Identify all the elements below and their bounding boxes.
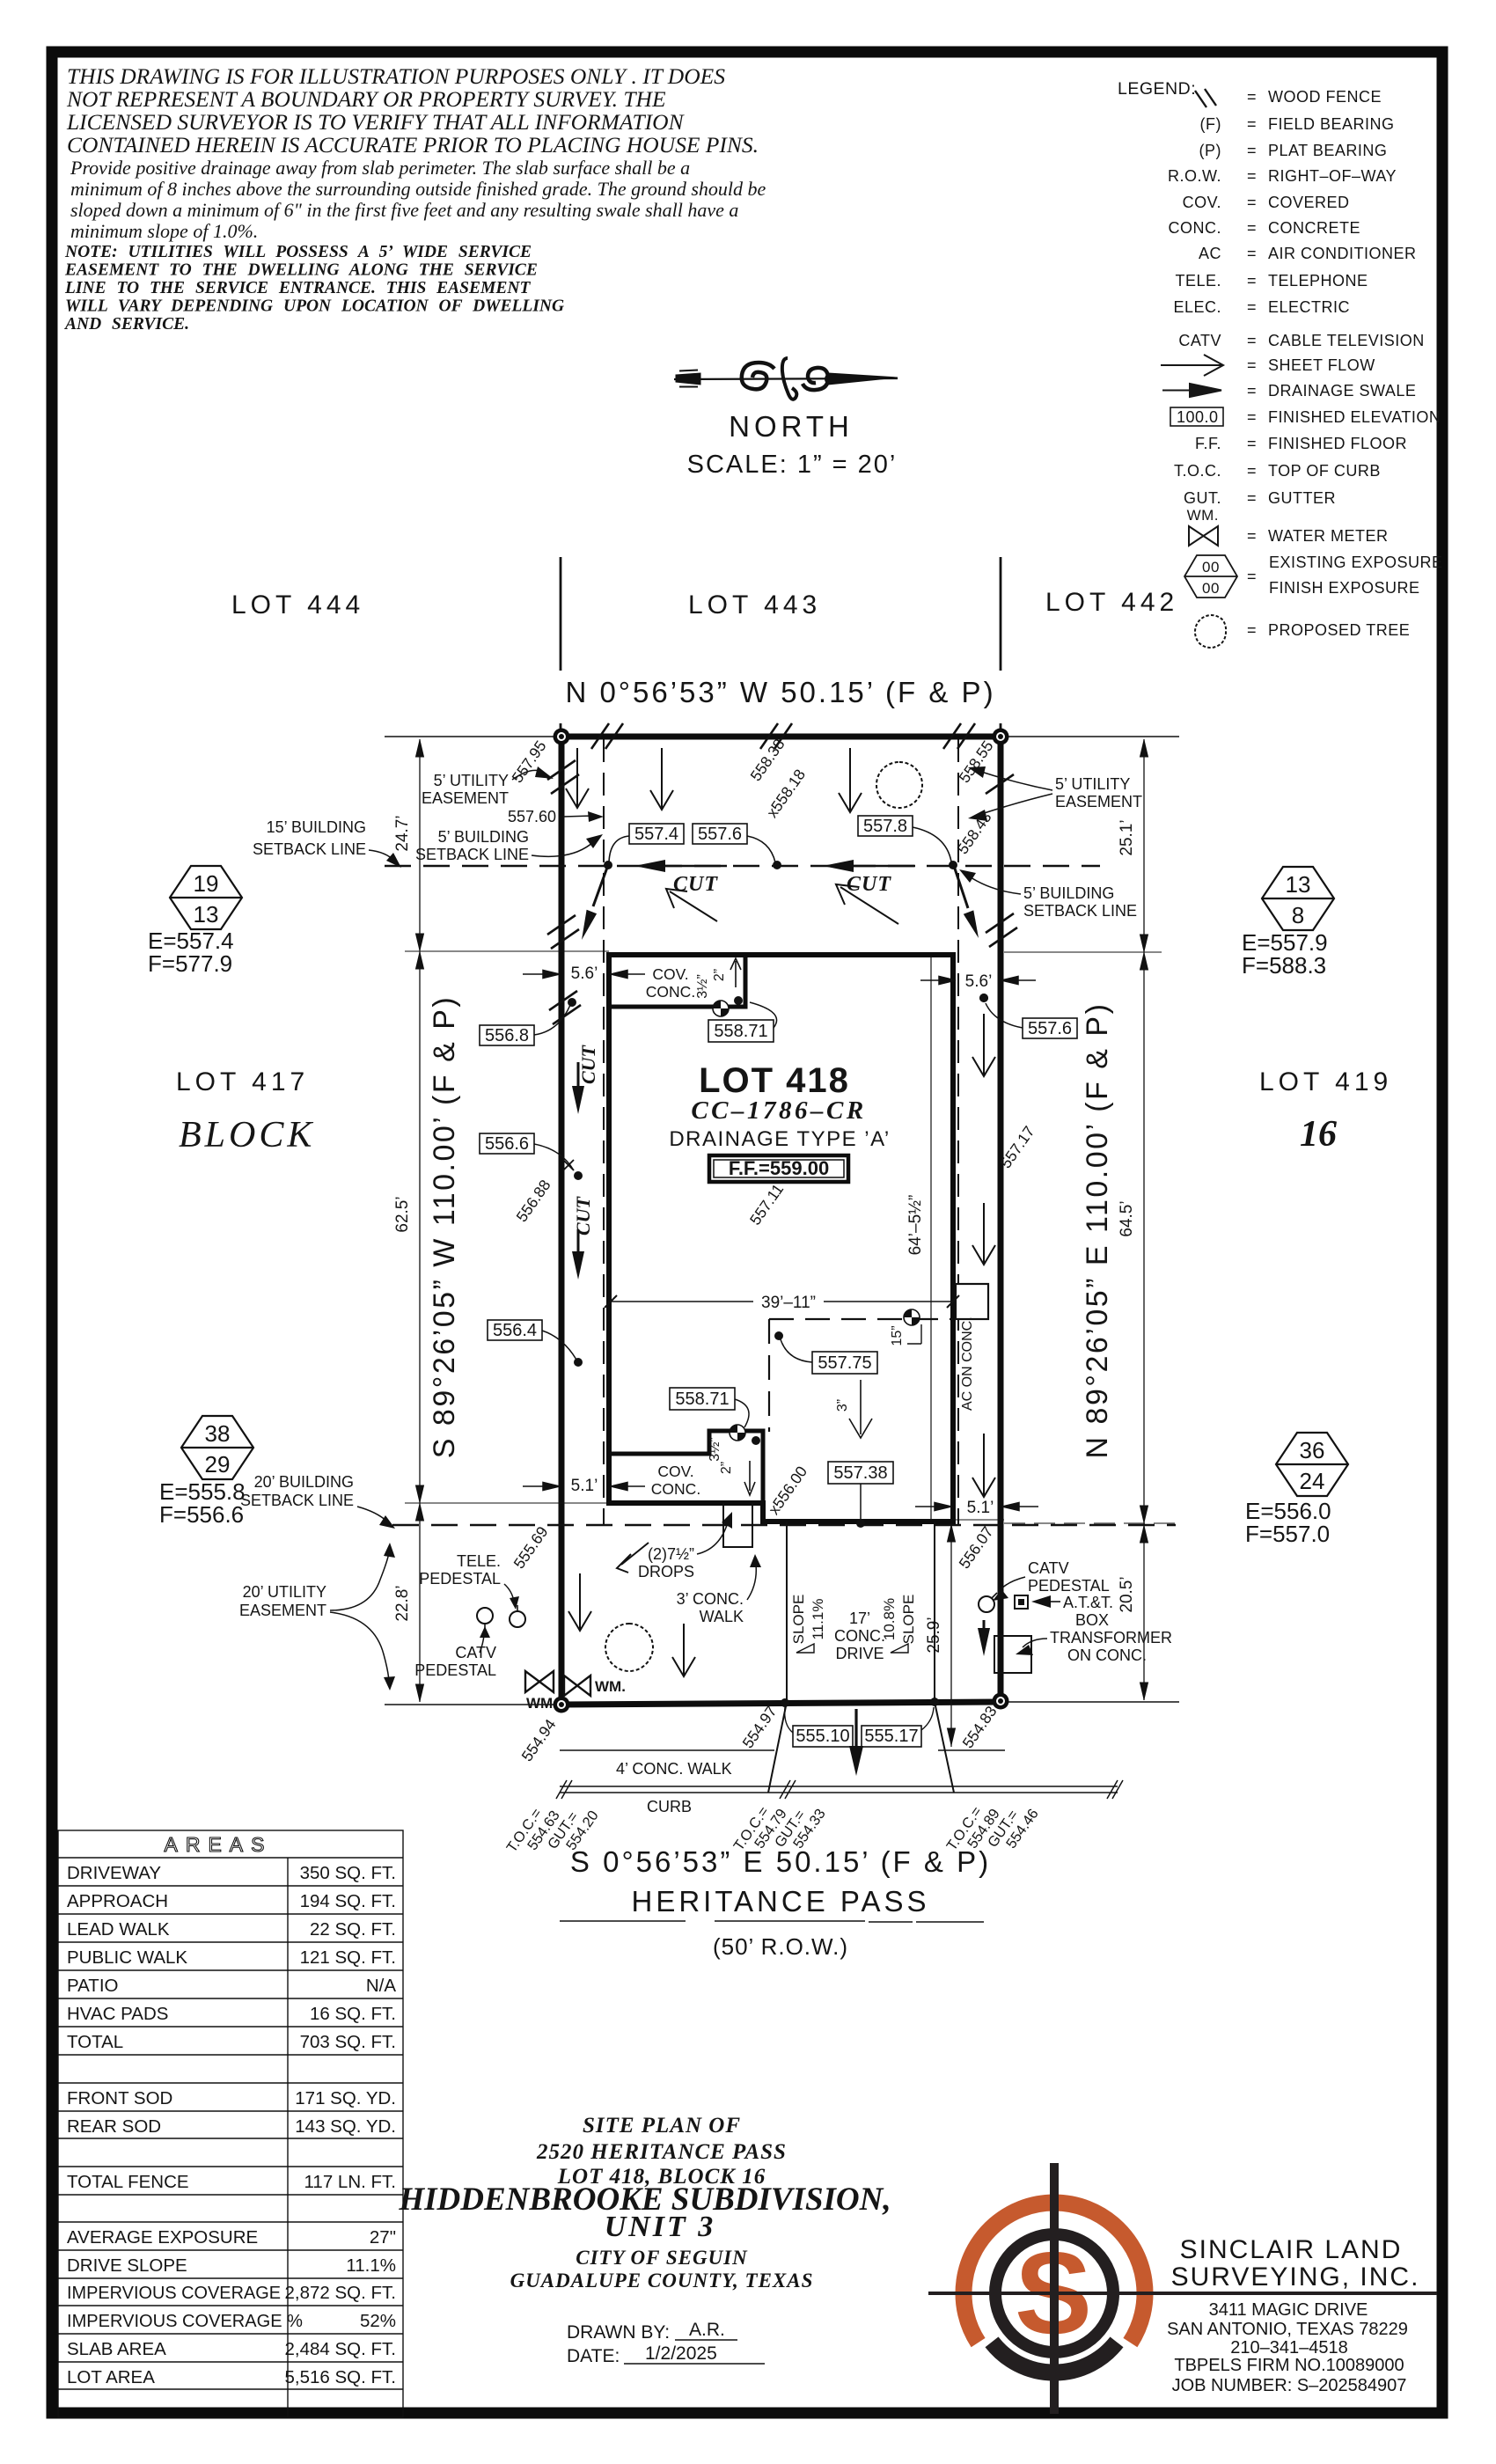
svg-text:WM: WM (526, 1695, 553, 1712)
svg-text:5.1’: 5.1’ (571, 1477, 598, 1495)
svg-text:CONC.: CONC. (834, 1627, 885, 1645)
svg-text:16 SQ. FT.: 16 SQ. FT. (310, 2004, 396, 2024)
svg-text:CONTAINED HEREIN IS ACCURATE P: CONTAINED HEREIN IS ACCURATE PRIOR TO PL… (67, 132, 759, 158)
svg-text:22 SQ. FT.: 22 SQ. FT. (310, 1919, 396, 1940)
svg-text:T.O.C.: T.O.C. (1174, 462, 1221, 480)
svg-text:CURB: CURB (647, 1798, 692, 1815)
svg-text:LEAD WALK: LEAD WALK (67, 1919, 170, 1940)
svg-text:2,872 SQ. FT.: 2,872 SQ. FT. (285, 2283, 396, 2303)
svg-text:CITY OF SEGUIN: CITY OF SEGUIN (576, 2247, 748, 2269)
svg-text:554.94: 554.94 (518, 1716, 560, 1765)
svg-text:CATV: CATV (455, 1644, 496, 1661)
svg-text:3½”: 3½” (708, 1437, 722, 1462)
svg-text:554.97: 554.97 (739, 1703, 781, 1751)
svg-text:3’ CONC.: 3’ CONC. (677, 1590, 744, 1608)
svg-text:EASEMENT: EASEMENT (239, 1602, 326, 1619)
svg-text:16: 16 (1300, 1114, 1337, 1155)
svg-text:13: 13 (194, 901, 219, 928)
svg-text:N 89°26’05” E 110.00’ (F & P): N 89°26’05” E 110.00’ (F & P) (1081, 1002, 1114, 1459)
svg-text:1/2/2025: 1/2/2025 (645, 2343, 717, 2364)
svg-text:3”: 3” (835, 1399, 850, 1412)
svg-text:IMPERVIOUS COVERAGE %: IMPERVIOUS COVERAGE % (67, 2311, 303, 2331)
svg-text:556.8: 556.8 (485, 1026, 529, 1045)
svg-text:TELE.: TELE. (457, 1552, 501, 1570)
svg-text:GUT.: GUT. (1184, 489, 1221, 507)
svg-text:REAR SOD: REAR SOD (67, 2116, 161, 2137)
svg-text:R.O.W.: R.O.W. (1168, 167, 1221, 185)
svg-text:WM.: WM. (1187, 507, 1219, 524)
svg-text:SINCLAIR LAND: SINCLAIR LAND (1180, 2235, 1403, 2264)
svg-text:5’ BUILDING: 5’ BUILDING (438, 828, 529, 846)
svg-text:52%: 52% (360, 2311, 396, 2331)
svg-text:20.5’: 20.5’ (1118, 1576, 1136, 1612)
svg-text:19: 19 (194, 870, 219, 897)
svg-text:38: 38 (205, 1420, 231, 1447)
svg-text:EASEMENT: EASEMENT (1055, 793, 1142, 810)
svg-text:minimum of 8 inches above the: minimum of 8 inches above the surroundin… (70, 178, 766, 200)
svg-text:555.10: 555.10 (796, 1727, 849, 1746)
svg-text:117 LN. FT.: 117 LN. FT. (304, 2172, 396, 2192)
svg-text:S 89°26’05” W 110.00’ (F & P): S 89°26’05” W 110.00’ (F & P) (428, 995, 461, 1458)
svg-text:LOT 443: LOT 443 (688, 590, 821, 620)
svg-text:27": 27" (370, 2227, 396, 2248)
svg-text:24.7’: 24.7’ (393, 815, 412, 851)
svg-text:5.1’: 5.1’ (967, 1499, 994, 1517)
svg-text:=: = (1247, 272, 1257, 290)
svg-text:=: = (1247, 435, 1257, 452)
svg-text:2520 HERITANCE PASS: 2520 HERITANCE PASS (536, 2140, 787, 2164)
svg-text:N 0°56’53” W 50.15’ (F & P): N 0°56’53” W 50.15’ (F & P) (565, 676, 995, 708)
svg-text:F.F.=559.00: F.F.=559.00 (729, 1157, 829, 1179)
svg-text:39’–11”: 39’–11” (761, 1294, 816, 1312)
svg-text:LEGEND:: LEGEND: (1118, 79, 1196, 99)
svg-text:JOB NUMBER: S–202584907: JOB NUMBER: S–202584907 (1172, 2376, 1407, 2395)
svg-text:=: = (1247, 88, 1257, 106)
svg-text:LICENSED SURVEYOR IS TO VERIFY: LICENSED SURVEYOR IS TO VERIFY THAT ALL … (66, 109, 686, 135)
svg-text:(2)7½”: (2)7½” (648, 1545, 694, 1563)
svg-text:20’ UTILITY: 20’ UTILITY (243, 1583, 326, 1601)
svg-text:=: = (1247, 382, 1257, 400)
svg-text:EXISTING EXPOSURE: EXISTING EXPOSURE (1269, 554, 1443, 571)
svg-text:F=556.6: F=556.6 (159, 1501, 244, 1528)
svg-text:24: 24 (1300, 1468, 1325, 1494)
svg-text:=: = (1247, 298, 1257, 316)
svg-text:sloped down a minimum of 6" in: sloped down a minimum of 6" in the first… (70, 199, 738, 221)
svg-text:N/A: N/A (366, 1976, 397, 1996)
svg-text:WILL VARY DEPENDING UPON LOCAT: WILL VARY DEPENDING UPON LOCATION OF DWE… (65, 297, 564, 316)
svg-text:556.88: 556.88 (513, 1177, 554, 1225)
svg-text:(P): (P) (1199, 142, 1222, 159)
svg-text:GUTTER: GUTTER (1268, 489, 1336, 507)
svg-text:2”: 2” (719, 1462, 734, 1474)
svg-text:210–341–4518: 210–341–4518 (1230, 2338, 1347, 2358)
svg-text:TOTAL: TOTAL (67, 2032, 123, 2052)
svg-text:DRAINAGE SWALE: DRAINAGE SWALE (1268, 382, 1416, 400)
svg-text:LOT 442: LOT 442 (1045, 588, 1178, 617)
svg-text:EASEMENT TO THE DWELLING ALONG: EASEMENT TO THE DWELLING ALONG THE SERVI… (64, 261, 538, 280)
svg-text:555.17: 555.17 (864, 1727, 918, 1746)
svg-text:PLAT BEARING: PLAT BEARING (1268, 142, 1387, 159)
svg-text:36: 36 (1300, 1437, 1325, 1463)
svg-text:CABLE TELEVISION: CABLE TELEVISION (1268, 332, 1425, 349)
svg-text:CC–1786–CR: CC–1786–CR (691, 1096, 866, 1125)
svg-text:SETBACK LINE: SETBACK LINE (415, 846, 529, 863)
svg-text:CATV: CATV (1028, 1559, 1069, 1577)
svg-text:5,516 SQ. FT.: 5,516 SQ. FT. (285, 2367, 396, 2387)
svg-text:LOT 418: LOT 418 (699, 1061, 850, 1100)
svg-text:x558.18: x558.18 (763, 766, 809, 820)
svg-text:557.6: 557.6 (1028, 1019, 1072, 1038)
svg-text:558.38: 558.38 (747, 736, 788, 784)
svg-text:THIS DRAWING IS FOR ILLUSTRATI: THIS DRAWING IS FOR ILLUSTRATION PURPOSE… (67, 63, 725, 89)
svg-text:=: = (1247, 115, 1257, 133)
svg-text:S 0°56’53” E 50.15’ (F & P): S 0°56’53” E 50.15’ (F & P) (570, 1845, 991, 1878)
svg-text:62.5’: 62.5’ (393, 1196, 412, 1232)
svg-text:=: = (1247, 408, 1257, 426)
svg-text:SETBACK LINE: SETBACK LINE (253, 840, 366, 858)
svg-text:HERITANCE PASS: HERITANCE PASS (632, 1885, 930, 1918)
svg-text:TELE.: TELE. (1175, 272, 1221, 290)
svg-text:A.T.&T.: A.T.&T. (1063, 1594, 1113, 1611)
svg-text:SETBACK LINE: SETBACK LINE (1023, 902, 1137, 920)
svg-text:PEDESTAL: PEDESTAL (1028, 1577, 1110, 1595)
svg-text:F.F.: F.F. (1195, 435, 1221, 452)
svg-text:29: 29 (205, 1451, 231, 1478)
svg-text:PATIO: PATIO (67, 1976, 118, 1996)
svg-text:=: = (1247, 142, 1257, 159)
svg-text:SLOPE: SLOPE (900, 1595, 917, 1645)
svg-text:TELEPHONE: TELEPHONE (1268, 272, 1368, 290)
svg-text:AND SERVICE.: AND SERVICE. (63, 315, 189, 334)
svg-text:DROPS: DROPS (638, 1563, 694, 1580)
svg-text:3½”: 3½” (695, 974, 710, 999)
svg-text:F=588.3: F=588.3 (1242, 952, 1326, 979)
svg-text:22.8’: 22.8’ (393, 1585, 412, 1621)
svg-text:SHEET FLOW: SHEET FLOW (1268, 356, 1375, 374)
svg-text:F=557.0: F=557.0 (1245, 1521, 1330, 1547)
svg-text:SETBACK LINE: SETBACK LINE (240, 1492, 354, 1509)
svg-text:17’: 17’ (849, 1610, 870, 1627)
svg-text:SCALE: 1” = 20’: SCALE: 1” = 20’ (687, 451, 898, 479)
svg-text:IMPERVIOUS COVERAGE: IMPERVIOUS COVERAGE (67, 2283, 281, 2303)
svg-text:5.6’: 5.6’ (571, 964, 598, 983)
svg-text:WOOD FENCE: WOOD FENCE (1268, 88, 1382, 106)
svg-text:GUADALUPE COUNTY, TEXAS: GUADALUPE COUNTY, TEXAS (510, 2270, 814, 2292)
svg-text:SLOPE: SLOPE (790, 1595, 807, 1645)
svg-text:UNIT 3: UNIT 3 (605, 2211, 716, 2243)
svg-text:10.8%: 10.8% (881, 1598, 898, 1640)
svg-text:555.69: 555.69 (510, 1523, 552, 1572)
svg-text:DRIVE SLOPE: DRIVE SLOPE (67, 2255, 187, 2276)
svg-text:2”: 2” (712, 969, 727, 981)
svg-text:AVERAGE EXPOSURE: AVERAGE EXPOSURE (67, 2227, 258, 2248)
svg-text:DRIVEWAY: DRIVEWAY (67, 1863, 161, 1883)
svg-text:AREAS: AREAS (165, 1833, 273, 1856)
svg-text:APPROACH: APPROACH (67, 1891, 168, 1911)
svg-text:171 SQ. YD.: 171 SQ. YD. (295, 2088, 396, 2108)
svg-text:=: = (1247, 245, 1257, 262)
svg-text:=: = (1247, 167, 1257, 185)
svg-text:5.6’: 5.6’ (965, 972, 993, 991)
svg-text:556.4: 556.4 (493, 1321, 537, 1340)
svg-text:557.8: 557.8 (863, 817, 907, 836)
svg-text:=: = (1247, 219, 1257, 237)
svg-text:TBPELS FIRM NO.10089000: TBPELS FIRM NO.10089000 (1174, 2356, 1404, 2375)
svg-text:LINE TO THE SERVICE ENTRANCE.: LINE TO THE SERVICE ENTRANCE. THIS EASEM… (64, 279, 531, 297)
svg-text:=: = (1247, 527, 1257, 545)
svg-text:=: = (1247, 621, 1257, 639)
svg-text:(F): (F) (1200, 115, 1221, 133)
svg-text:FINISH EXPOSURE: FINISH EXPOSURE (1269, 579, 1420, 597)
svg-text:CUT: CUT (572, 1195, 594, 1236)
svg-text:SLAB AREA: SLAB AREA (67, 2339, 166, 2359)
svg-text:SITE PLAN OF: SITE PLAN OF (583, 2114, 741, 2138)
svg-text:(50’ R.O.W.): (50’ R.O.W.) (713, 1933, 848, 1960)
svg-text:ON CONC.: ON CONC. (1067, 1646, 1147, 1664)
svg-text:LOT 417: LOT 417 (176, 1067, 309, 1096)
svg-text:558.71: 558.71 (714, 1022, 767, 1041)
svg-text:NOTE: UTILITIES WILL POSSESS A: NOTE: UTILITIES WILL POSSESS A 5’ WIDE S… (64, 243, 532, 261)
svg-text:20’ BUILDING: 20’ BUILDING (254, 1473, 354, 1491)
svg-text:NOT REPRESENT A BOUNDARY OR PR: NOT REPRESENT A BOUNDARY OR PROPERTY SUR… (66, 86, 666, 112)
svg-text:PUBLIC WALK: PUBLIC WALK (67, 1947, 187, 1968)
svg-text:LOT 444: LOT 444 (231, 590, 364, 620)
svg-text:COV.: COV. (657, 1463, 693, 1480)
svg-text:557.6: 557.6 (698, 825, 742, 844)
svg-text:=: = (1247, 489, 1257, 507)
svg-text:FIELD BEARING: FIELD BEARING (1268, 115, 1395, 133)
svg-text:ELECTRIC: ELECTRIC (1268, 298, 1350, 316)
svg-text:121 SQ. FT.: 121 SQ. FT. (300, 1947, 396, 1968)
svg-text:00: 00 (1202, 580, 1220, 597)
svg-text:EASEMENT: EASEMENT (422, 789, 509, 807)
svg-text:AIR CONDITIONER: AIR CONDITIONER (1268, 245, 1417, 262)
svg-text:CUT: CUT (847, 873, 891, 896)
svg-text:TOTAL FENCE: TOTAL FENCE (67, 2172, 189, 2192)
svg-text:AC: AC (1199, 245, 1221, 262)
svg-text:HVAC PADS: HVAC PADS (67, 2004, 168, 2024)
svg-text:=: = (1247, 462, 1257, 480)
svg-text:350 SQ. FT.: 350 SQ. FT. (300, 1863, 396, 1883)
svg-text:WM.: WM. (595, 1678, 626, 1695)
svg-text:FRONT SOD: FRONT SOD (67, 2088, 172, 2108)
svg-text:2,484 SQ. FT.: 2,484 SQ. FT. (285, 2339, 396, 2359)
svg-text:64’–5½”: 64’–5½” (906, 1195, 925, 1256)
svg-text:557.4: 557.4 (634, 825, 678, 844)
svg-text:556.6: 556.6 (485, 1134, 529, 1154)
svg-text:DATE:: DATE: (567, 2346, 620, 2366)
svg-text:25.1’: 25.1’ (1118, 819, 1136, 855)
svg-text:557.75: 557.75 (818, 1353, 871, 1373)
svg-text:CONC.: CONC. (1169, 219, 1222, 237)
svg-text:DRAINAGE TYPE ’A’: DRAINAGE TYPE ’A’ (669, 1127, 890, 1151)
svg-text:11.1%: 11.1% (810, 1599, 826, 1640)
svg-text:194 SQ. FT.: 194 SQ. FT. (300, 1891, 396, 1911)
svg-text:100.0: 100.0 (1177, 408, 1219, 426)
svg-text:15’ BUILDING: 15’ BUILDING (267, 818, 366, 836)
svg-text:3411 MAGIC DRIVE: 3411 MAGIC DRIVE (1209, 2300, 1368, 2320)
svg-text:BLOCK: BLOCK (179, 1115, 315, 1155)
svg-text:CONC.: CONC. (651, 1480, 700, 1498)
svg-text:PROPOSED TREE: PROPOSED TREE (1268, 621, 1410, 639)
svg-text:64.5’: 64.5’ (1118, 1200, 1136, 1236)
svg-text:13: 13 (1286, 871, 1311, 898)
svg-text:COV.: COV. (1183, 194, 1221, 211)
svg-text:CONC.: CONC. (646, 983, 695, 1001)
svg-text:554.83: 554.83 (959, 1703, 1001, 1751)
svg-text:=: = (1247, 356, 1257, 374)
svg-text:FINISHED ELEVATION: FINISHED ELEVATION (1268, 408, 1441, 426)
svg-text:NORTH: NORTH (729, 410, 854, 443)
svg-text:703 SQ. FT.: 703 SQ. FT. (300, 2032, 396, 2052)
svg-text:COVERED: COVERED (1268, 194, 1350, 211)
svg-text:LOT AREA: LOT AREA (67, 2367, 155, 2387)
svg-text:557.38: 557.38 (833, 1463, 887, 1483)
svg-text:DRIVE: DRIVE (835, 1645, 884, 1662)
svg-text:WALK: WALK (700, 1608, 744, 1625)
svg-text:SAN ANTONIO, TEXAS 78229: SAN ANTONIO, TEXAS 78229 (1167, 2320, 1408, 2339)
svg-text:WATER METER: WATER METER (1268, 527, 1389, 545)
svg-text:Provide positive drainage away: Provide positive drainage away from slab… (70, 157, 690, 179)
svg-text:CONCRETE: CONCRETE (1268, 219, 1360, 237)
svg-text:143 SQ. YD.: 143 SQ. YD. (295, 2116, 396, 2137)
svg-text:5’ UTILITY: 5’ UTILITY (1055, 775, 1130, 793)
svg-text:BOX: BOX (1075, 1611, 1109, 1629)
svg-text:4’ CONC. WALK: 4’ CONC. WALK (616, 1760, 732, 1778)
svg-text:=: = (1247, 332, 1257, 349)
svg-text:5’ BUILDING: 5’ BUILDING (1023, 884, 1114, 902)
svg-text:RIGHT–OF–WAY: RIGHT–OF–WAY (1268, 167, 1397, 185)
svg-text:DRAWN BY:: DRAWN BY: (567, 2322, 670, 2343)
svg-text:LOT 419: LOT 419 (1259, 1067, 1392, 1096)
svg-text:557.95: 557.95 (509, 737, 550, 786)
svg-text:=: = (1247, 194, 1257, 211)
svg-text:11.1%: 11.1% (346, 2255, 396, 2276)
svg-text:00: 00 (1202, 559, 1220, 576)
svg-text:CUT: CUT (577, 1044, 599, 1084)
svg-text:F=577.9: F=577.9 (148, 950, 232, 977)
svg-text:CATV: CATV (1178, 332, 1221, 349)
svg-text:557.60: 557.60 (508, 808, 556, 825)
svg-text:CUT: CUT (673, 873, 718, 896)
svg-text:minimum slope of 1.0%.: minimum slope of 1.0%. (70, 220, 258, 242)
svg-text:ELEC.: ELEC. (1173, 298, 1221, 316)
svg-text:=: = (1247, 568, 1257, 585)
svg-text:556.07: 556.07 (956, 1523, 997, 1572)
svg-text:PEDESTAL: PEDESTAL (419, 1570, 501, 1588)
svg-text:TRANSFORMER: TRANSFORMER (1050, 1629, 1172, 1646)
svg-text:FINISHED FLOOR: FINISHED FLOOR (1268, 435, 1407, 452)
svg-text:15”: 15” (890, 1325, 905, 1346)
svg-text:558.71: 558.71 (675, 1390, 729, 1409)
svg-text:A.R.: A.R. (689, 2320, 725, 2340)
svg-text:5’ UTILITY: 5’ UTILITY (434, 772, 509, 789)
svg-text:AC ON CONC.: AC ON CONC. (960, 1316, 975, 1411)
svg-text:PEDESTAL: PEDESTAL (414, 1661, 496, 1679)
svg-text:TOP OF CURB: TOP OF CURB (1268, 462, 1381, 480)
svg-text:SURVEYING, INC.: SURVEYING, INC. (1171, 2262, 1420, 2292)
svg-text:8: 8 (1292, 902, 1304, 928)
svg-text:COV.: COV. (652, 965, 688, 983)
